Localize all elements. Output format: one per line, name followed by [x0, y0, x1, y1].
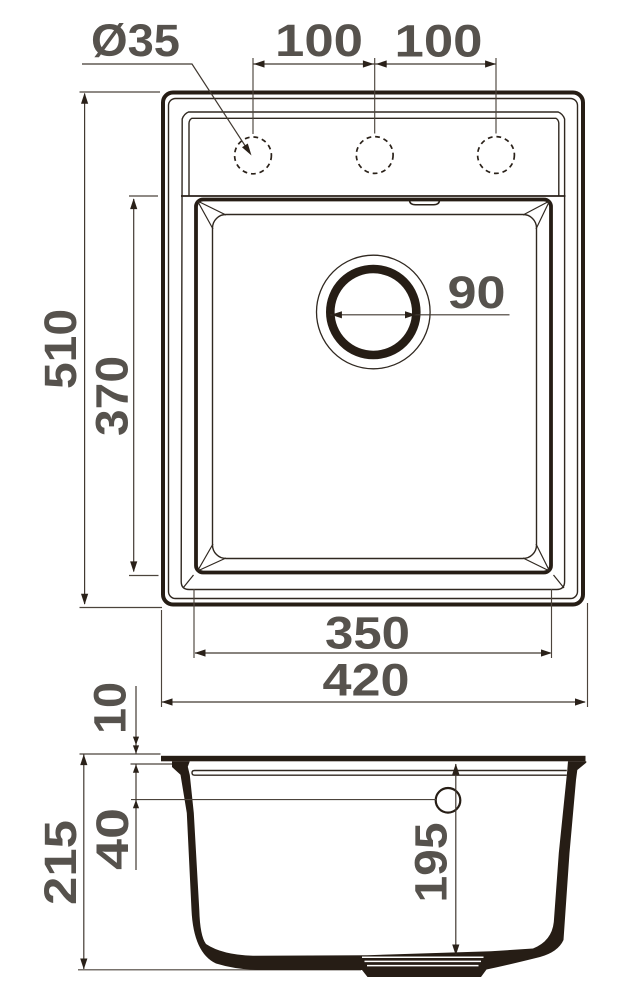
svg-text:215: 215	[35, 820, 86, 905]
svg-text:100: 100	[395, 16, 483, 67]
svg-text:420: 420	[323, 655, 410, 706]
svg-text:100: 100	[275, 15, 363, 66]
svg-text:350: 350	[325, 608, 410, 659]
svg-text:10: 10	[85, 682, 136, 734]
svg-text:90: 90	[448, 267, 506, 318]
svg-text:Ø35: Ø35	[91, 15, 180, 66]
svg-text:370: 370	[87, 356, 138, 436]
svg-text:40: 40	[87, 808, 138, 870]
svg-text:510: 510	[35, 309, 86, 389]
svg-text:195: 195	[406, 823, 457, 903]
